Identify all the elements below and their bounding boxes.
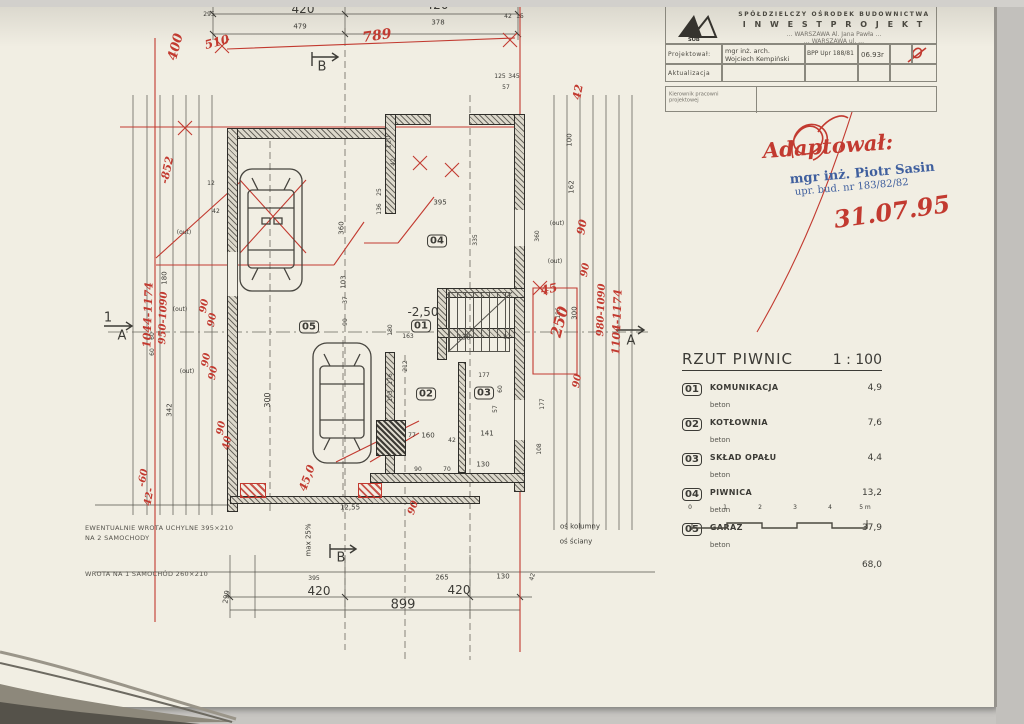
legend-room-material: beton: [710, 541, 730, 549]
dim-label: 360: [535, 230, 541, 241]
dim-label: 212: [403, 360, 409, 371]
dim-label: 162: [569, 180, 576, 193]
dim-label: 100: [567, 133, 574, 146]
note-single-gate: WROTA NA 1 SAMOCHÓD 260×210: [85, 570, 233, 578]
door-opening-right-1: [514, 210, 525, 246]
dim-label: max 25%: [306, 523, 313, 556]
dim-label: 70: [443, 467, 451, 473]
dim-label: (out): [548, 259, 563, 265]
dim-label: 160: [421, 433, 434, 440]
legend-room-material: beton: [710, 401, 730, 409]
chimney-block: [376, 420, 406, 456]
dim-label: 130: [476, 462, 489, 469]
red-annotation: 980-1090: [596, 283, 608, 336]
signature-cell: [912, 44, 937, 64]
dim-label: 90: [414, 467, 422, 473]
car-top-view-1: [236, 166, 308, 296]
section-marker-a-left: A: [118, 330, 127, 343]
sob-logo-text: SOB: [688, 37, 700, 43]
dim-label: oś kolumny: [560, 524, 600, 531]
dim-label: 300: [572, 306, 579, 319]
legend-row: 02 KOTŁOWNIA beton 7,6: [682, 418, 882, 446]
title-block: SOB SPÓŁDZIELCZY OŚRODEK BUDOWNICTWA I N…: [665, 6, 937, 112]
dim-label: 42: [212, 209, 220, 215]
designer-title: mgr inż. arch.: [725, 47, 802, 55]
red-column-right: [358, 483, 382, 498]
scale-bar-label: 5 m: [859, 505, 871, 511]
empty-cell-4: [858, 64, 890, 82]
dim-label: 420: [426, 0, 449, 11]
dim-label: 378: [431, 20, 444, 27]
legend-room-area: 13,2: [862, 488, 882, 498]
note-gates: EWENTUALNIE WROTA UCHYLNE 395×210 NA 2 S…: [85, 524, 233, 578]
dim-label: oś ściany: [560, 539, 592, 546]
projektowal-name-cell: mgr inż. arch. Wojciech Kempiński: [722, 44, 805, 64]
legend-room-number: 04: [682, 488, 702, 501]
red-annotation: 1104-1174: [610, 289, 623, 355]
wall-garage-top: [227, 128, 395, 139]
legend-room-name: SKŁAD OPAŁU: [710, 453, 777, 462]
dim-label: 42: [391, 158, 397, 166]
dim-label: 395: [433, 200, 446, 207]
dim-label: 77: [408, 433, 416, 439]
wall-room02-left: [385, 352, 395, 482]
scale-bar-steps: [690, 516, 880, 532]
dim-label: 180: [388, 324, 394, 335]
room-number: 03: [474, 387, 494, 400]
wall-bottom-rooms: [370, 473, 525, 483]
dim-label: 25: [377, 188, 383, 196]
room-number: 01: [411, 320, 431, 333]
empty-cell-2: [722, 64, 805, 82]
dim-label: -2,50: [407, 306, 438, 318]
dim-label: 60: [498, 385, 504, 393]
empty-cell-3: [805, 64, 858, 82]
dim-label: 42: [504, 14, 512, 20]
scale-bar-label: 3: [793, 505, 797, 511]
legend-room-material: beton: [710, 436, 730, 444]
section-marker-b-bottom: B: [337, 552, 346, 565]
legend-title: RZUT PIWNIC: [682, 350, 793, 368]
dim-label: 180: [162, 271, 169, 284]
kierownik-row: Kierownik pracowni projektowej: [665, 86, 937, 112]
legend-room-name: KOTŁOWNIA: [710, 418, 768, 427]
car-top-view-2: [310, 340, 376, 468]
dim-label: 342: [167, 403, 174, 416]
dim-label: 300: [264, 392, 272, 407]
dim-label: 12,55: [340, 505, 360, 512]
dim-label: 479: [293, 24, 306, 31]
dim-label: 395: [308, 576, 319, 582]
dim-label: 90: [343, 318, 349, 326]
scale-bar-label: 4: [828, 505, 832, 511]
legend-room-area: 4,4: [868, 453, 882, 463]
dim-label: 37: [343, 296, 349, 304]
note-gates-line2: NA 2 SAMOCHODY: [85, 534, 233, 542]
dim-label: 82: [503, 335, 511, 341]
red-annotation: 1044-1174: [141, 282, 154, 348]
dim-label: 420: [448, 584, 471, 596]
room-number: 04: [427, 235, 447, 248]
wall-room02-03-divider: [458, 362, 466, 473]
dim-label: 138: [457, 335, 470, 342]
red-annotation: 42: [571, 84, 584, 101]
red-column-left: [240, 483, 266, 498]
legend-room-material: beton: [710, 471, 730, 479]
dim-label: 60: [150, 348, 156, 356]
window-opening-top: [430, 114, 470, 125]
legend-total-area: 68,0: [682, 558, 882, 570]
dim-label: 899: [391, 599, 416, 612]
room-number: 02: [416, 388, 436, 401]
legend-room-area: 4,9: [868, 383, 882, 393]
legend-room-name: KOMUNIKACJA: [710, 383, 779, 392]
kierownik-label-2: projektowej: [669, 98, 740, 104]
dim-label: 103: [341, 275, 348, 288]
dim-label: 360: [339, 221, 346, 234]
dim-label: (out): [180, 369, 195, 375]
legend-room-number: 01: [682, 383, 702, 396]
dim-label: 42: [448, 438, 456, 444]
dim-label: 177: [478, 373, 489, 379]
dim-label: 420: [308, 585, 331, 597]
dim-label: 295: [203, 12, 214, 18]
legend-room-name: PIWNICA: [710, 488, 752, 497]
company-name-line2: I N W E S T P R O J E K T: [734, 20, 934, 29]
stairs-walkline: [446, 290, 516, 356]
legend-scale: 1 : 100: [833, 352, 882, 368]
scale-bar: 012345 m: [690, 508, 880, 538]
dim-label: 420: [292, 3, 315, 15]
legend-row: 03 SKŁAD OPAŁU beton 4,4: [682, 453, 882, 481]
dim-label: 141: [480, 431, 493, 438]
section-marker-b-top: B: [318, 61, 327, 74]
dim-label: 125: [494, 74, 505, 80]
dim-label: (out): [173, 307, 188, 313]
dim-label: 57: [502, 85, 510, 91]
dim-label: 265: [435, 575, 448, 582]
dim-label: 136: [377, 203, 383, 214]
empty-cell-1: [890, 44, 912, 64]
date-cell: 06.93r: [858, 44, 890, 64]
dim-label: (out): [550, 221, 565, 227]
legend-room-number: 02: [682, 418, 702, 431]
scale-bar-label: 1: [723, 505, 727, 511]
dim-label: 120: [386, 135, 393, 148]
designer-name: Wojciech Kempiński: [725, 55, 802, 64]
scanned-blueprint-page: { "title_block": { "company_line1": "SPÓ…: [0, 0, 1024, 724]
legend-row: 01 KOMUNIKACJA beton 4,9: [682, 383, 882, 411]
dim-label: 177: [540, 398, 546, 409]
dim-label: 12: [207, 181, 215, 187]
room-number: 05: [299, 321, 319, 334]
dim-label: 163: [402, 334, 413, 340]
scale-bar-label: 0: [688, 505, 692, 511]
dim-label: (out): [177, 230, 192, 236]
projektowal-label-cell: Projektował:: [665, 44, 722, 64]
dim-label: 176: [388, 373, 394, 384]
red-annotation: 90: [575, 219, 588, 236]
empty-cell-5: [890, 64, 937, 82]
red-annotation: 789: [362, 27, 393, 45]
legend-room-area: 7,6: [868, 418, 882, 428]
door-opening-right-2: [514, 400, 525, 440]
red-annotation: 950-1090: [158, 291, 170, 344]
sob-logo-icon: [672, 11, 732, 41]
red-annotation: 45: [540, 281, 559, 296]
aktualizacja-label-cell: Aktualizacja: [665, 64, 722, 82]
dim-label: 15: [516, 14, 524, 20]
legend-room-number: 03: [682, 453, 702, 466]
section-marker-a-right: A: [627, 335, 636, 348]
dim-label: 103: [388, 390, 394, 401]
dim-label: 130: [496, 574, 509, 581]
note-gates-line1: EWENTUALNIE WROTA UCHYLNE 395×210: [85, 524, 233, 532]
upr-cell: BPP Upr 188/81: [805, 44, 858, 64]
company-name-line1: SPÓŁDZIELCZY OŚRODEK BUDOWNICTWA: [734, 11, 934, 18]
dim-label: 108: [537, 443, 543, 454]
dim-label: 345: [508, 74, 519, 80]
dim-label: 335: [473, 234, 479, 245]
section-marker-1-left: 1: [104, 312, 112, 325]
title-block-header: SOB SPÓŁDZIELCZY OŚRODEK BUDOWNICTWA I N…: [665, 6, 937, 44]
dim-label: 57: [493, 405, 499, 413]
scale-bar-label: 2: [758, 505, 762, 511]
